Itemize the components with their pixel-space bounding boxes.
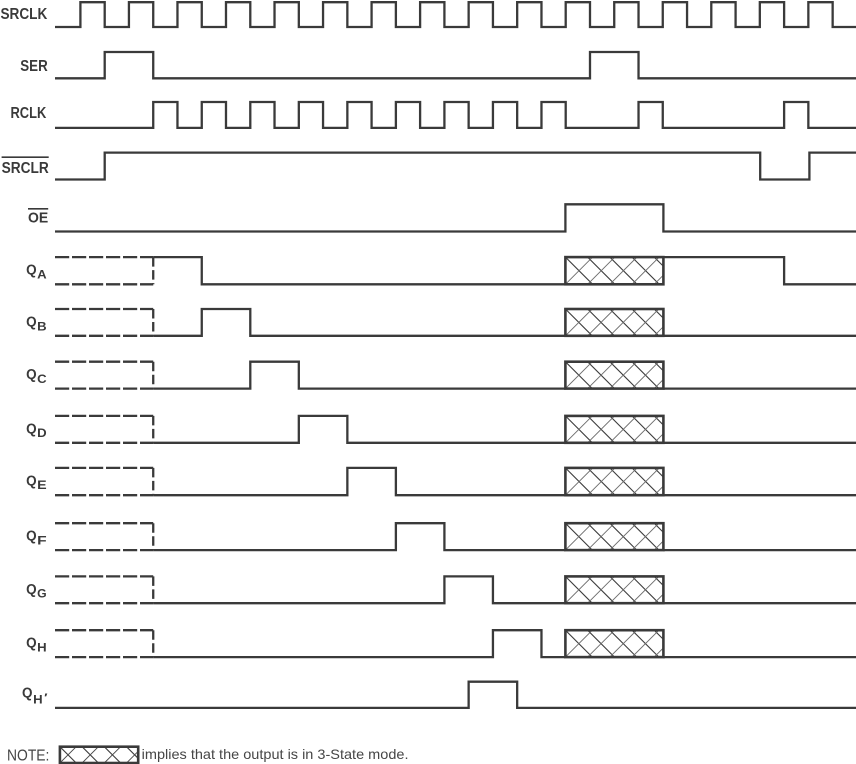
- svg-text:Q: Q: [22, 686, 33, 702]
- svg-text:C: C: [37, 372, 47, 386]
- svg-text:B: B: [37, 319, 47, 333]
- svg-text:Q: Q: [26, 367, 36, 383]
- svg-text:E: E: [37, 478, 47, 492]
- svg-text:OE: OE: [28, 211, 48, 227]
- svg-text:H: H: [33, 692, 43, 706]
- svg-text:Q: Q: [26, 263, 36, 279]
- svg-text:G: G: [37, 587, 47, 601]
- svg-text:A: A: [37, 267, 47, 281]
- svg-text:H: H: [37, 641, 47, 655]
- svg-text:Q: Q: [26, 636, 36, 652]
- svg-text:SRCLR: SRCLR: [2, 160, 49, 177]
- svg-text:Q: Q: [26, 473, 36, 489]
- svg-text:implies that the output is in: implies that the output is in 3-State mo…: [142, 747, 409, 762]
- svg-text:SER: SER: [20, 58, 47, 75]
- svg-text:Q: Q: [26, 529, 36, 545]
- svg-text:RCLK: RCLK: [11, 105, 47, 122]
- svg-text:SRCLK: SRCLK: [1, 6, 48, 23]
- svg-text:F: F: [37, 534, 47, 548]
- svg-text:′: ′: [44, 692, 48, 704]
- svg-text:Q: Q: [26, 314, 36, 330]
- svg-text:Q: Q: [26, 421, 36, 437]
- svg-text:Q: Q: [26, 582, 36, 598]
- svg-text:NOTE:: NOTE:: [7, 748, 49, 764]
- svg-text:D: D: [37, 426, 47, 440]
